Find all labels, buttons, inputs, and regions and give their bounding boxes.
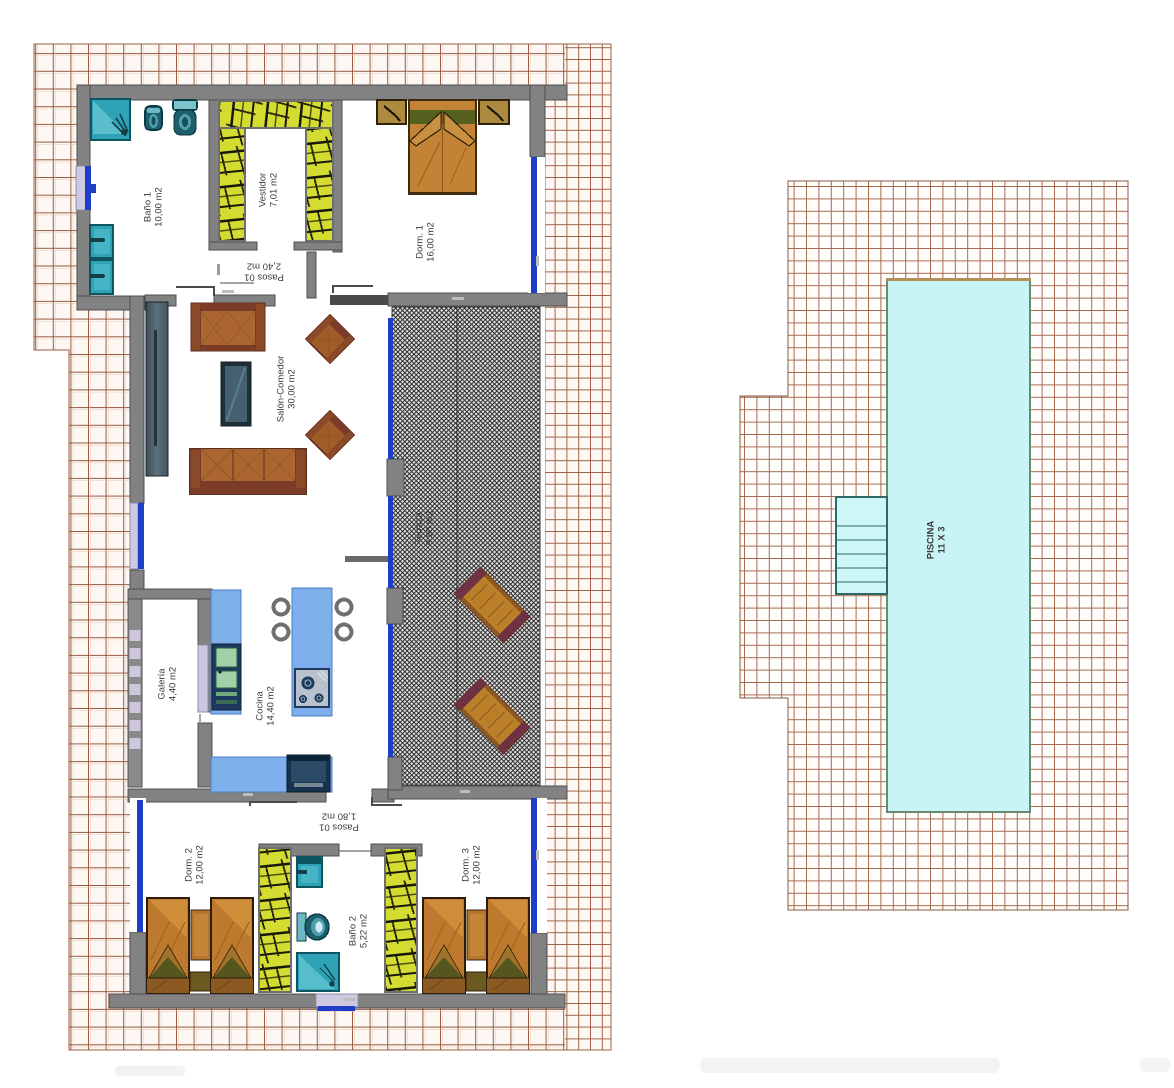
svg-text:Salón-Comedor: Salón-Comedor bbox=[276, 356, 287, 423]
svg-text:14,40 m2: 14,40 m2 bbox=[266, 686, 277, 726]
svg-text:Cocina: Cocina bbox=[255, 691, 266, 721]
svg-text:Vestidor: Vestidor bbox=[258, 173, 269, 207]
svg-text:Galería: Galería bbox=[157, 668, 168, 700]
svg-text:Pasos 01: Pasos 01 bbox=[244, 272, 284, 283]
svg-text:2,40 m2: 2,40 m2 bbox=[247, 261, 281, 272]
svg-text:Pasos 01: Pasos 01 bbox=[319, 822, 359, 833]
svg-text:Baño 2: Baño 2 bbox=[348, 916, 359, 946]
svg-text:Dorm. 1: Dorm. 1 bbox=[415, 225, 426, 259]
svg-text:30,00 m2: 30,00 m2 bbox=[287, 369, 298, 409]
svg-text:10,00 m2: 10,00 m2 bbox=[154, 187, 165, 227]
svg-text:11 X 3: 11 X 3 bbox=[937, 527, 948, 554]
svg-text:Baño 1: Baño 1 bbox=[143, 192, 154, 222]
svg-text:Terraza: Terraza bbox=[414, 511, 425, 543]
svg-text:Dorm. 2: Dorm. 2 bbox=[184, 848, 195, 882]
svg-text:9,80 m2: 9,80 m2 bbox=[425, 511, 436, 545]
svg-text:12,00 m2: 12,00 m2 bbox=[472, 845, 483, 885]
svg-text:4,40 m2: 4,40 m2 bbox=[168, 667, 179, 701]
svg-text:1,80 m2: 1,80 m2 bbox=[322, 811, 356, 822]
svg-text:PISCINA: PISCINA bbox=[926, 521, 937, 560]
svg-text:Dorm. 3: Dorm. 3 bbox=[461, 848, 472, 882]
svg-text:7,01 m2: 7,01 m2 bbox=[269, 173, 280, 207]
svg-text:12,00 m2: 12,00 m2 bbox=[195, 845, 206, 885]
svg-text:16,00 m2: 16,00 m2 bbox=[426, 222, 437, 262]
svg-text:5,22 m2: 5,22 m2 bbox=[359, 914, 370, 948]
